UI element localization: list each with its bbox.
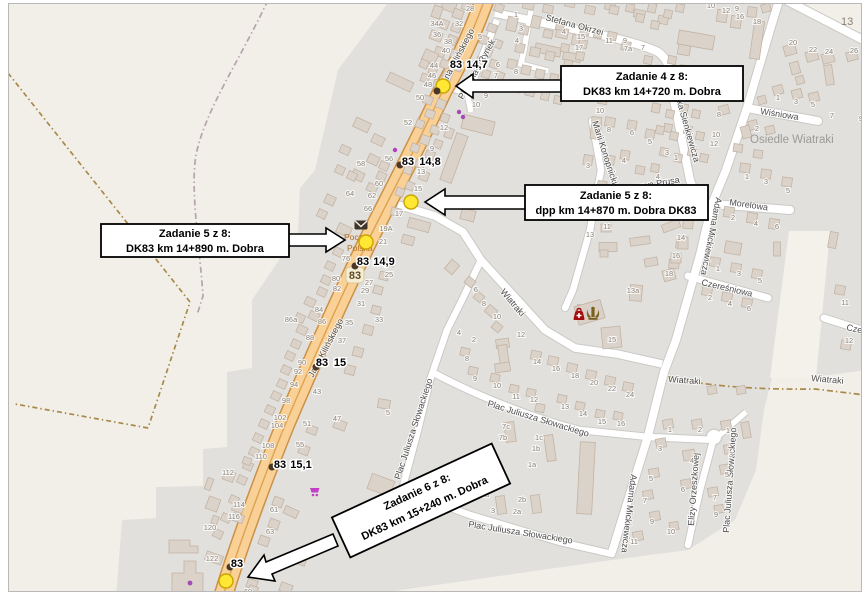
svg-text:3: 3 [586,161,590,170]
svg-text:5: 5 [648,137,652,146]
svg-text:98: 98 [282,396,290,405]
svg-text:104: 104 [271,421,284,430]
svg-text:17: 17 [575,43,583,52]
svg-text:9: 9 [473,374,477,383]
svg-text:12: 12 [710,139,718,148]
svg-text:43: 43 [313,387,321,396]
svg-text:84: 84 [315,305,323,314]
svg-text:28: 28 [466,4,474,13]
svg-text:9: 9 [714,510,718,519]
svg-text:108: 108 [262,441,275,450]
svg-text:62: 62 [368,191,376,200]
svg-text:5: 5 [725,470,729,479]
svg-text:7: 7 [494,71,498,80]
svg-text:112: 112 [222,468,234,477]
svg-text:48: 48 [424,80,432,89]
svg-text:3: 3 [794,97,798,106]
svg-text:DK83 km 14+890 m. Dobra: DK83 km 14+890 m. Dobra [126,243,265,255]
svg-text:7: 7 [830,111,834,120]
svg-text:5: 5 [649,474,653,483]
svg-text:56: 56 [385,154,393,163]
svg-text:2: 2 [755,124,759,133]
svg-text:29: 29 [361,286,369,295]
svg-text:15: 15 [577,32,585,41]
svg-text:10: 10 [493,312,501,321]
svg-text:26: 26 [850,46,858,55]
svg-text:3: 3 [729,450,733,459]
svg-text:116: 116 [228,512,240,521]
svg-text:55: 55 [296,440,304,449]
svg-text:63: 63 [266,527,274,536]
svg-text:12: 12 [845,336,853,345]
svg-text:90: 90 [298,358,306,367]
svg-text:3: 3 [665,148,669,157]
svg-text:1: 1 [668,425,672,434]
svg-text:1: 1 [674,153,678,162]
svg-text:dpp km 14+870 m. Dobra DK83: dpp km 14+870 m. Dobra DK83 [535,205,696,217]
svg-text:58: 58 [357,159,365,168]
svg-text:92: 92 [294,367,302,376]
svg-text:18: 18 [665,269,673,278]
svg-text:52: 52 [404,118,412,127]
svg-text:120: 120 [204,523,217,532]
svg-text:3: 3 [764,177,768,186]
svg-text:13: 13 [586,230,594,239]
svg-text:24: 24 [626,390,634,399]
svg-text:6: 6 [775,222,779,231]
svg-text:8: 8 [465,354,469,363]
svg-text:15: 15 [414,184,422,193]
svg-text:DK83 km 14+720 m. Dobra: DK83 km 14+720 m. Dobra [583,86,722,98]
svg-text:14,8: 14,8 [419,156,440,168]
svg-text:18: 18 [753,17,761,26]
svg-text:94: 94 [290,380,298,389]
svg-text:8: 8 [514,67,518,76]
svg-text:9: 9 [430,144,434,153]
svg-text:10: 10 [712,130,720,139]
svg-text:9: 9 [650,517,654,526]
svg-text:22: 22 [608,384,616,393]
svg-text:2a: 2a [513,507,522,516]
svg-text:82: 82 [333,284,341,293]
svg-text:11: 11 [841,298,849,307]
svg-text:13a: 13a [627,286,640,295]
svg-text:18: 18 [571,371,579,380]
svg-text:4: 4 [656,172,660,181]
svg-text:83: 83 [349,270,361,282]
svg-text:51: 51 [303,419,311,428]
svg-text:20: 20 [789,38,797,47]
svg-text:13: 13 [417,167,425,176]
svg-text:83: 83 [402,156,414,168]
svg-text:12: 12 [530,395,538,404]
svg-text:5: 5 [811,100,815,109]
svg-text:1c: 1c [535,433,543,442]
svg-text:5: 5 [786,186,790,195]
svg-text:7a: 7a [624,44,633,53]
svg-text:Zadanie 5 z 8:: Zadanie 5 z 8: [159,228,231,240]
svg-text:8: 8 [482,299,486,308]
svg-text:11: 11 [605,36,613,45]
svg-text:1: 1 [716,264,720,273]
svg-text:14: 14 [677,233,685,242]
svg-text:12: 12 [722,6,730,15]
svg-text:16: 16 [617,419,625,428]
svg-text:3: 3 [491,506,495,515]
svg-text:33: 33 [375,315,383,324]
svg-text:12: 12 [517,330,525,339]
svg-text:15: 15 [598,417,606,426]
svg-text:2: 2 [731,213,735,222]
svg-text:22: 22 [809,45,817,54]
svg-text:4: 4 [562,27,566,36]
svg-text:76: 76 [342,254,350,263]
svg-text:83: 83 [450,59,462,71]
svg-text:46: 46 [428,71,436,80]
svg-text:3: 3 [737,269,741,278]
svg-text:7: 7 [641,43,645,52]
svg-text:19A: 19A [379,224,392,233]
svg-text:21: 21 [379,237,387,246]
svg-text:83: 83 [316,357,328,369]
svg-text:36: 36 [433,30,441,39]
svg-text:4: 4 [457,328,461,337]
svg-text:7c: 7c [502,422,510,431]
svg-text:20: 20 [590,378,598,387]
svg-text:16: 16 [552,364,560,373]
svg-text:2: 2 [472,335,476,344]
svg-text:1: 1 [745,172,749,181]
svg-text:4: 4 [754,219,758,228]
svg-text:13: 13 [841,16,853,28]
svg-text:86: 86 [318,317,326,326]
svg-text:3: 3 [519,24,523,33]
svg-text:40: 40 [442,46,450,55]
svg-text:5: 5 [478,32,482,41]
svg-text:1b: 1b [532,444,540,453]
svg-text:8: 8 [717,110,721,119]
svg-text:16: 16 [672,251,680,260]
svg-text:2b: 2b [518,495,526,504]
svg-text:3: 3 [658,444,662,453]
svg-text:6: 6 [630,128,634,137]
svg-text:80: 80 [332,274,340,283]
svg-text:15,1: 15,1 [290,459,311,471]
svg-text:24: 24 [825,47,833,56]
svg-text:6: 6 [747,304,751,313]
svg-text:34A: 34A [430,19,443,28]
svg-text:1: 1 [514,10,518,19]
svg-text:14,9: 14,9 [373,256,394,268]
svg-text:10: 10 [472,100,480,109]
svg-text:11: 11 [630,537,638,546]
svg-text:4: 4 [728,299,732,308]
svg-text:12: 12 [440,123,448,132]
svg-text:110: 110 [255,452,267,461]
svg-text:50: 50 [416,93,424,102]
svg-text:5: 5 [386,408,390,417]
svg-text:88: 88 [306,333,314,342]
svg-text:31: 31 [357,299,365,308]
svg-text:1: 1 [776,93,780,102]
svg-text:15: 15 [608,335,616,344]
svg-text:25: 25 [385,270,393,279]
svg-text:2: 2 [708,293,712,302]
svg-text:7: 7 [713,493,717,502]
svg-text:1: 1 [726,426,730,435]
svg-text:14: 14 [533,357,541,366]
svg-text:47: 47 [333,414,341,423]
svg-text:64: 64 [346,189,354,198]
svg-text:Osiedle Wiatraki: Osiedle Wiatraki [750,134,834,146]
svg-text:8: 8 [607,125,611,134]
svg-text:6: 6 [681,485,685,494]
svg-text:14,7: 14,7 [466,59,487,71]
svg-text:10: 10 [493,381,501,390]
svg-text:38: 38 [444,37,452,46]
svg-text:Zadanie 5 z 8:: Zadanie 5 z 8: [580,190,652,202]
svg-text:16: 16 [736,12,744,21]
svg-text:61: 61 [270,505,278,514]
svg-text:10: 10 [667,527,675,536]
svg-text:6: 6 [474,285,478,294]
svg-text:122: 122 [206,554,219,563]
svg-text:4: 4 [690,456,694,465]
svg-text:13: 13 [561,402,569,411]
svg-text:5: 5 [758,276,762,285]
svg-text:7: 7 [643,496,647,505]
svg-text:11: 11 [603,222,611,231]
svg-text:44: 44 [430,61,438,70]
svg-text:6: 6 [496,60,500,69]
svg-text:Zadanie 4 z 8:: Zadanie 4 z 8: [616,71,688,83]
svg-text:10: 10 [596,106,604,115]
svg-text:15: 15 [334,357,346,369]
svg-text:114: 114 [233,500,245,509]
svg-text:35: 35 [345,318,353,327]
svg-text:60: 60 [375,179,383,188]
svg-text:4: 4 [622,156,626,165]
svg-text:32: 32 [455,19,463,28]
svg-text:14: 14 [579,409,587,418]
svg-text:17: 17 [395,209,403,218]
svg-text:9: 9 [735,4,739,13]
svg-text:66: 66 [364,204,372,213]
svg-text:86a: 86a [285,315,298,324]
svg-text:4: 4 [515,36,519,45]
svg-text:83: 83 [357,256,369,268]
svg-text:83: 83 [274,459,286,471]
svg-text:37: 37 [338,336,346,345]
svg-text:11: 11 [512,392,520,401]
svg-text:1a: 1a [528,460,537,469]
svg-text:2: 2 [698,425,702,434]
svg-text:83: 83 [231,558,243,570]
svg-text:7b: 7b [499,433,507,442]
